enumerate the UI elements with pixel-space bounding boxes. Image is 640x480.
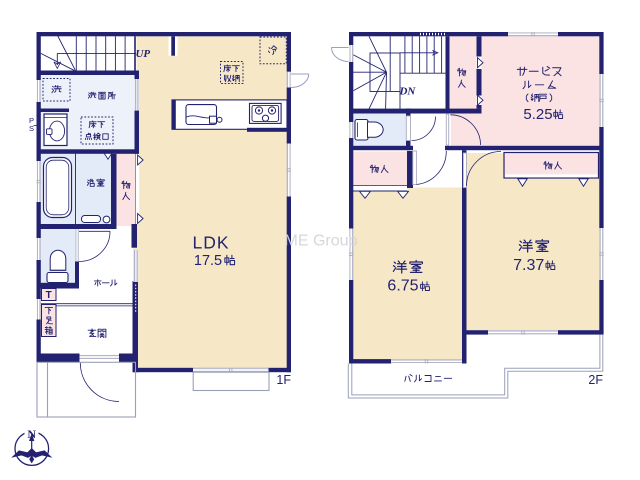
svg-text:T: T [46,290,52,301]
svg-text:5.25: 5.25 [523,106,552,123]
svg-text:LDK: LDK [192,233,229,253]
svg-text:DN: DN [398,86,416,98]
svg-text:17.5: 17.5 [194,253,222,269]
svg-text:2F: 2F [588,373,603,387]
svg-text:UP: UP [135,48,150,60]
svg-text:1F: 1F [276,373,291,387]
svg-text:7.37: 7.37 [513,257,544,274]
svg-text:6.75: 6.75 [387,278,418,295]
svg-text:ME Group: ME Group [285,233,358,250]
svg-text:S: S [29,124,34,133]
